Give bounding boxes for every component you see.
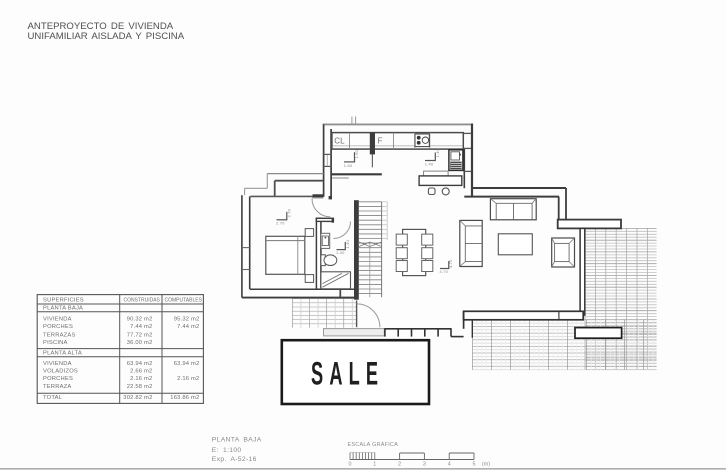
svg-text:22.58 m2: 22.58 m2 <box>127 384 153 390</box>
svg-text:2.66 m2: 2.66 m2 <box>130 369 152 375</box>
svg-text:PORCHES: PORCHES <box>43 324 73 330</box>
svg-text:VOLADIZOS: VOLADIZOS <box>43 369 78 375</box>
svg-text:PLANTA BAJA: PLANTA BAJA <box>43 306 83 312</box>
svg-text:0: 0 <box>349 461 352 467</box>
svg-text:7.44 m2: 7.44 m2 <box>130 324 152 330</box>
svg-text:F: F <box>378 137 383 146</box>
svg-text:CL: CL <box>334 137 345 146</box>
svg-text:TOTAL: TOTAL <box>43 395 63 401</box>
svg-text:VIVIENDA: VIVIENDA <box>43 361 72 367</box>
svg-text:2.70: 2.70 <box>276 221 285 226</box>
svg-text:2.70: 2.70 <box>286 208 291 217</box>
svg-text:COMPUTABLES: COMPUTABLES <box>165 298 203 304</box>
svg-text:1.60: 1.60 <box>344 163 353 168</box>
svg-text:2.16 m2: 2.16 m2 <box>130 376 152 382</box>
svg-text:1.60: 1.60 <box>354 149 359 158</box>
svg-text:Exp. A-52-16: Exp. A-52-16 <box>212 456 257 463</box>
svg-text:(m): (m) <box>482 461 490 467</box>
svg-text:302.82 m2: 302.82 m2 <box>123 395 152 401</box>
svg-text:VIVIENDA: VIVIENDA <box>43 316 72 322</box>
svg-text:2: 2 <box>398 461 401 467</box>
svg-text:7.44 m2: 7.44 m2 <box>177 324 199 330</box>
svg-text:ESCALA GRÁFICA: ESCALA GRÁFICA <box>348 441 399 448</box>
svg-text:TERRAZAS: TERRAZAS <box>43 333 76 339</box>
svg-text:2.16 m2: 2.16 m2 <box>177 376 199 382</box>
svg-text:95.32 m2: 95.32 m2 <box>174 316 200 322</box>
svg-text:1.40: 1.40 <box>336 250 345 255</box>
svg-text:E: 1:100: E: 1:100 <box>212 447 242 454</box>
svg-text:90.32 m2: 90.32 m2 <box>127 316 153 322</box>
svg-text:PORCHES: PORCHES <box>43 376 73 382</box>
svg-text:1.40: 1.40 <box>345 239 350 248</box>
svg-text:3: 3 <box>423 461 426 467</box>
svg-text:SUPERFICIES: SUPERFICIES <box>43 298 84 304</box>
svg-text:77.72 m2: 77.72 m2 <box>127 333 153 339</box>
svg-text:36.00 m2: 36.00 m2 <box>127 340 153 346</box>
svg-text:163.86 m2: 163.86 m2 <box>170 395 199 401</box>
svg-text:TERRAZA: TERRAZA <box>43 384 71 390</box>
svg-text:PLANTA ALTA: PLANTA ALTA <box>43 351 82 357</box>
svg-text:63.94 m2: 63.94 m2 <box>127 361 153 367</box>
svg-text:PLANTA BAJA: PLANTA BAJA <box>212 437 262 444</box>
svg-text:UNIFAMILIAR AISLADA Y PISCINA: UNIFAMILIAR AISLADA Y PISCINA <box>28 31 185 42</box>
svg-text:4.70: 4.70 <box>440 269 449 274</box>
svg-text:PISCINA: PISCINA <box>43 340 68 346</box>
svg-text:4: 4 <box>448 461 451 467</box>
svg-text:SALE: SALE <box>311 355 384 392</box>
svg-text:1: 1 <box>373 461 376 467</box>
svg-text:4.70: 4.70 <box>448 259 453 268</box>
svg-text:1.40: 1.40 <box>435 148 440 157</box>
svg-text:1.40: 1.40 <box>425 162 434 167</box>
svg-text:CONSTRUIDAS: CONSTRUIDAS <box>124 298 161 304</box>
svg-text:63.94 m2: 63.94 m2 <box>174 361 200 367</box>
svg-text:5: 5 <box>473 461 476 467</box>
